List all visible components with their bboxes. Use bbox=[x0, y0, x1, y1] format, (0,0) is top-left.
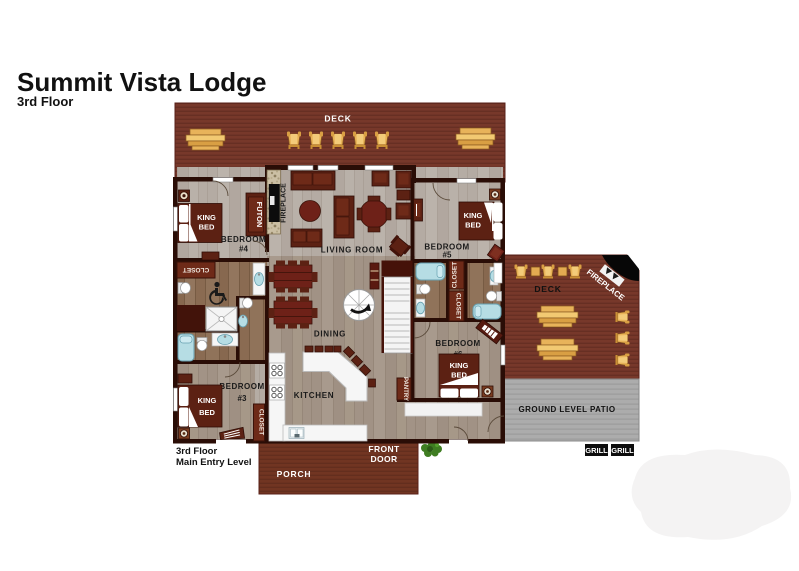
svg-text:GRILL: GRILL bbox=[585, 446, 608, 455]
svg-text:3rd Floor: 3rd Floor bbox=[17, 94, 73, 109]
svg-text:CLOSET: CLOSET bbox=[455, 293, 462, 319]
svg-text:GROUND LEVEL PATIO: GROUND LEVEL PATIO bbox=[519, 405, 616, 414]
svg-text:GRILL: GRILL bbox=[611, 446, 634, 455]
svg-text:3rd Floor: 3rd Floor bbox=[176, 446, 217, 457]
svg-text:KING: KING bbox=[197, 213, 216, 222]
svg-text:CLOSET: CLOSET bbox=[452, 262, 459, 288]
svg-text:#3: #3 bbox=[238, 394, 247, 403]
svg-text:#4: #4 bbox=[239, 245, 248, 254]
svg-text:DINING: DINING bbox=[314, 330, 346, 339]
svg-text:PORCH: PORCH bbox=[277, 469, 312, 479]
svg-text:Main Entry Level: Main Entry Level bbox=[176, 457, 252, 468]
svg-text:FUTON: FUTON bbox=[255, 202, 264, 228]
svg-text:DOOR: DOOR bbox=[370, 454, 397, 464]
svg-text:BED: BED bbox=[199, 408, 215, 417]
svg-text:FIREPLACE: FIREPLACE bbox=[281, 183, 288, 223]
svg-text:LIVING ROOM: LIVING ROOM bbox=[321, 246, 384, 255]
svg-text:CLOSET: CLOSET bbox=[183, 266, 209, 273]
svg-text:BEDROOM: BEDROOM bbox=[435, 339, 480, 348]
svg-text:DECK: DECK bbox=[324, 114, 351, 124]
svg-text:KITCHEN: KITCHEN bbox=[294, 391, 334, 400]
svg-text:Summit Vista Lodge: Summit Vista Lodge bbox=[17, 67, 266, 97]
svg-text:BED: BED bbox=[199, 223, 215, 232]
svg-text:CLOSET: CLOSET bbox=[258, 409, 265, 435]
svg-text:BED: BED bbox=[465, 221, 481, 230]
svg-text:BEDROOM: BEDROOM bbox=[219, 382, 264, 391]
svg-text:DECK: DECK bbox=[534, 284, 561, 294]
svg-text:#5: #5 bbox=[443, 251, 452, 260]
svg-text:KING: KING bbox=[450, 361, 469, 370]
svg-text:PANTRY: PANTRY bbox=[402, 377, 408, 401]
svg-text:BED: BED bbox=[451, 371, 467, 380]
svg-text:KING: KING bbox=[464, 211, 483, 220]
svg-text:KING: KING bbox=[198, 396, 217, 405]
svg-text:FRONT: FRONT bbox=[368, 444, 400, 454]
